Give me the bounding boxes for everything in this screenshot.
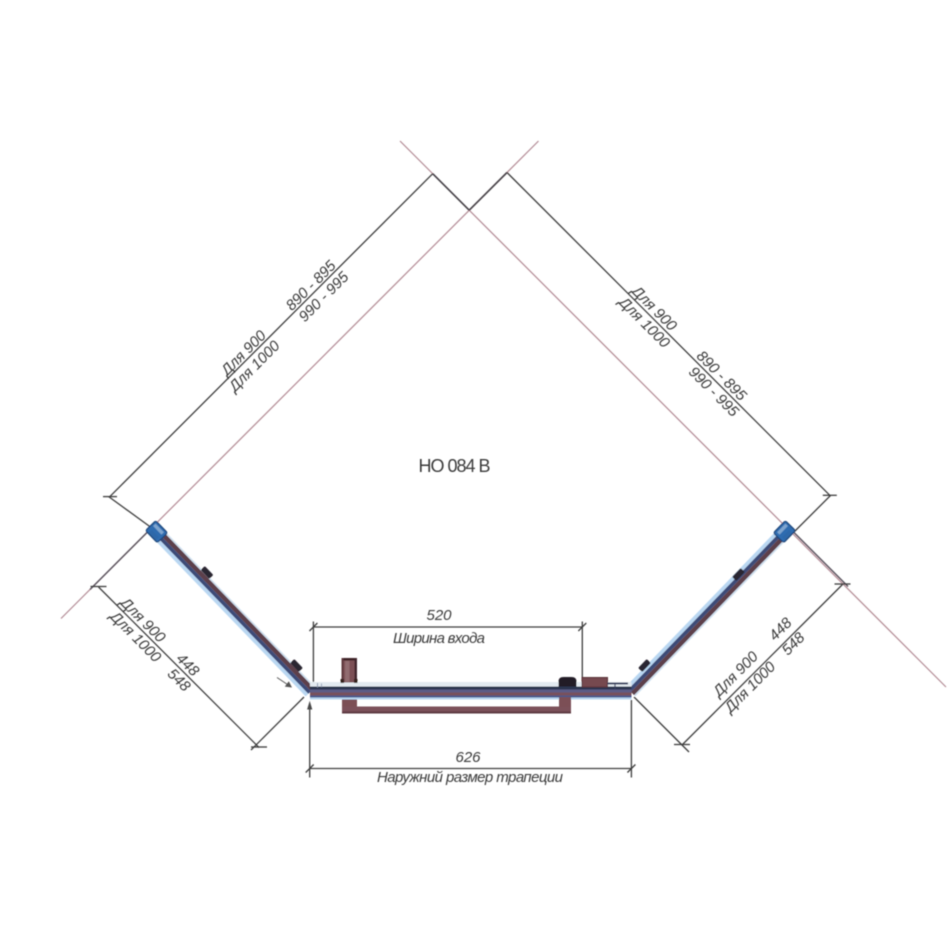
svg-text:Наружний размер трапеции: Наружний размер трапеции <box>377 769 564 786</box>
svg-text:626: 626 <box>456 749 482 766</box>
svg-text:Ширина входа: Ширина входа <box>393 630 485 647</box>
svg-text:520: 520 <box>427 607 453 624</box>
svg-text:НО 084 В: НО 084 В <box>419 456 491 476</box>
